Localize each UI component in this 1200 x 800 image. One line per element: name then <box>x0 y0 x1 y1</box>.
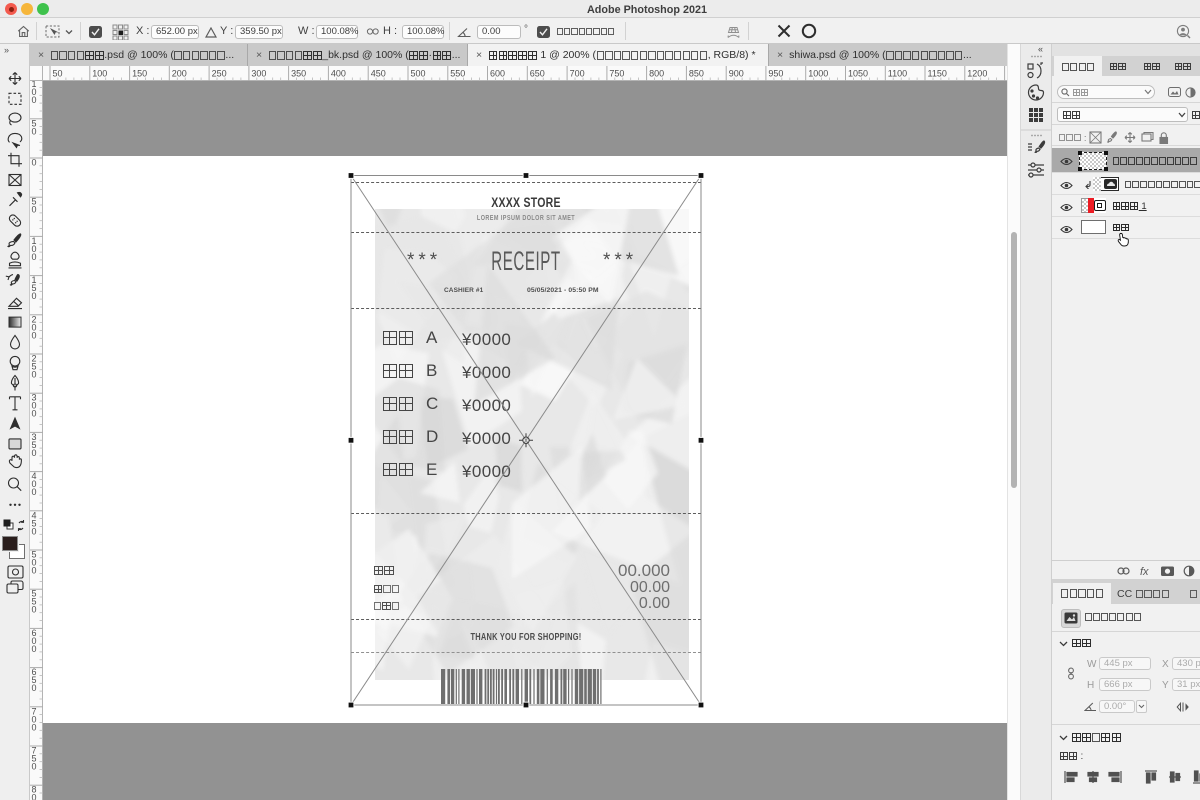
svg-text:950: 950 <box>768 69 783 79</box>
svg-text:fx: fx <box>1140 566 1149 577</box>
svg-text:800: 800 <box>649 69 664 79</box>
svg-text:300: 300 <box>251 69 266 79</box>
svg-text:150: 150 <box>132 69 147 79</box>
svg-text:0: 0 <box>32 126 37 136</box>
svg-text:0: 0 <box>32 487 37 497</box>
svg-text:0: 0 <box>32 370 37 380</box>
svg-text:1150: 1150 <box>928 69 947 79</box>
svg-text:0: 0 <box>32 330 37 340</box>
svg-text:400: 400 <box>331 69 346 79</box>
svg-text:0: 0 <box>32 409 37 419</box>
svg-text:0: 0 <box>32 644 37 654</box>
svg-text:0: 0 <box>32 252 37 262</box>
svg-text:0: 0 <box>32 566 37 576</box>
svg-text:0: 0 <box>32 526 37 536</box>
svg-text:0: 0 <box>32 95 37 105</box>
svg-text:650: 650 <box>530 69 545 79</box>
svg-text:100: 100 <box>92 69 107 79</box>
svg-text:0: 0 <box>32 605 37 615</box>
svg-text:0: 0 <box>32 683 37 693</box>
svg-text:0: 0 <box>32 722 37 732</box>
svg-text:350: 350 <box>291 69 306 79</box>
svg-text:600: 600 <box>490 69 505 79</box>
svg-text:0: 0 <box>32 762 37 772</box>
svg-text:500: 500 <box>411 69 426 79</box>
svg-text:1100: 1100 <box>888 69 907 79</box>
svg-text:50: 50 <box>53 69 63 79</box>
svg-text:450: 450 <box>371 69 386 79</box>
svg-text:900: 900 <box>729 69 744 79</box>
svg-text:250: 250 <box>212 69 227 79</box>
svg-text:0: 0 <box>32 205 37 215</box>
svg-text:850: 850 <box>689 69 704 79</box>
svg-text:0: 0 <box>32 291 37 301</box>
svg-text:550: 550 <box>450 69 465 79</box>
svg-text:1000: 1000 <box>808 69 828 79</box>
svg-text:200: 200 <box>172 69 187 79</box>
svg-text:700: 700 <box>570 69 585 79</box>
svg-text:0: 0 <box>32 448 37 458</box>
svg-text:1200: 1200 <box>967 69 987 79</box>
svg-text:0: 0 <box>32 793 37 800</box>
svg-text:0: 0 <box>32 158 37 168</box>
svg-text:1050: 1050 <box>848 69 868 79</box>
svg-text:750: 750 <box>609 69 624 79</box>
